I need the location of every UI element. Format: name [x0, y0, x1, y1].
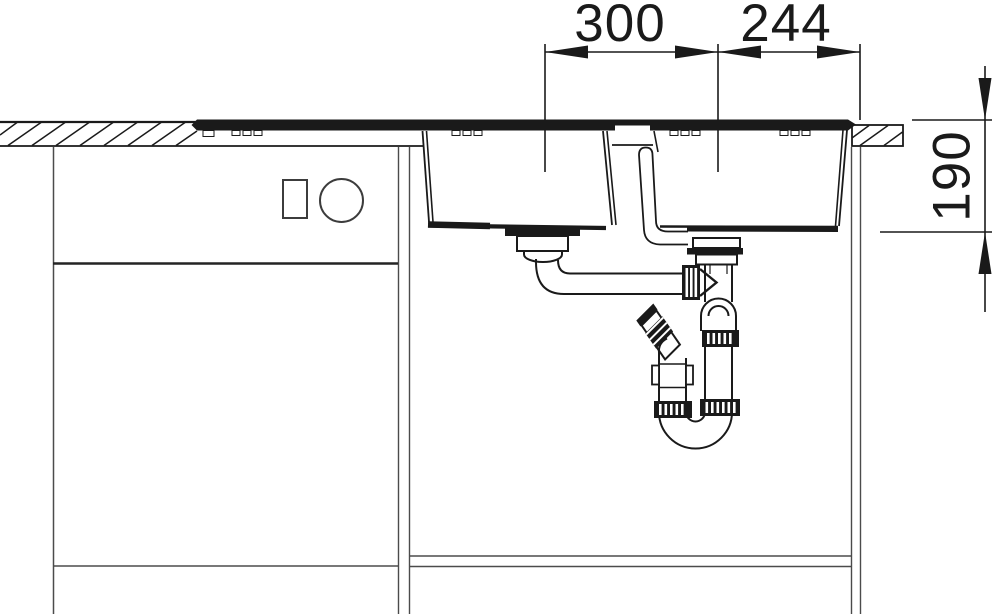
- siphon-trap: [636, 299, 740, 449]
- bowl2-right-wall-outer: [839, 130, 847, 226]
- circle-symbol: [320, 179, 363, 222]
- wall-outlet-pipe: [636, 304, 680, 360]
- trap-nut-upper: [702, 330, 739, 347]
- arrow-top: [979, 78, 992, 120]
- overflow-channel: [639, 148, 688, 245]
- dimension-drain-spacing: 300: [545, 0, 718, 172]
- trap-nut-lower-left: [654, 401, 692, 418]
- dimension-label-244: 244: [740, 0, 831, 53]
- base-cabinet: [53, 147, 861, 614]
- pipe-coupling-nut: [682, 265, 700, 300]
- rim-fastening-clips: [203, 131, 810, 137]
- bowl1-bottom-thick: [428, 225, 490, 227]
- bowl1-drain-body: [517, 236, 568, 251]
- drawing-canvas: 300 244 190: [0, 0, 992, 614]
- overflow-cap: [639, 148, 653, 156]
- bowl2-left-wall: [654, 131, 658, 152]
- bowl1-right-wall-outer: [603, 131, 612, 225]
- sink-rim: [192, 120, 857, 131]
- dimension-drain-to-edge: 244: [718, 0, 860, 120]
- sink-installation-drawing: 300 244 190: [0, 0, 992, 614]
- riser-union-joint: [652, 364, 693, 388]
- appliance-control-symbols: [283, 179, 363, 222]
- bowl1-elbow-inner: [558, 260, 570, 274]
- bowl1-drain-flange: [505, 228, 580, 236]
- overflow-inner: [653, 155, 689, 232]
- countertop-right-body: [852, 125, 903, 146]
- rectangle-symbol: [283, 180, 307, 218]
- bowl2-drain-body: [696, 255, 737, 265]
- countertop-right-section: [852, 125, 903, 146]
- bowl-1-main: [423, 131, 617, 228]
- dimension-label-300: 300: [574, 0, 665, 53]
- swivel-joint: [701, 299, 736, 332]
- trap-nut-lower-right: [700, 399, 740, 416]
- dimension-label-190: 190: [923, 130, 982, 221]
- bowl1-drain-dome: [524, 251, 562, 262]
- bowl1-elbow-outer: [536, 259, 564, 294]
- rim-divider-gap: [615, 126, 650, 132]
- tee-connector: [700, 269, 717, 296]
- arrow-right: [675, 46, 718, 59]
- dimension-bowl-depth: 190: [880, 66, 992, 312]
- bowl2-right-wall-inner: [836, 130, 844, 226]
- arrow-bottom: [979, 232, 992, 274]
- inset-sink: [192, 120, 857, 245]
- bowl-2-half: [654, 130, 847, 229]
- bowl1-drain-assembly: [505, 228, 717, 300]
- bowl2-bottom-thick: [687, 229, 838, 230]
- bowl2-drain-ring: [693, 238, 740, 248]
